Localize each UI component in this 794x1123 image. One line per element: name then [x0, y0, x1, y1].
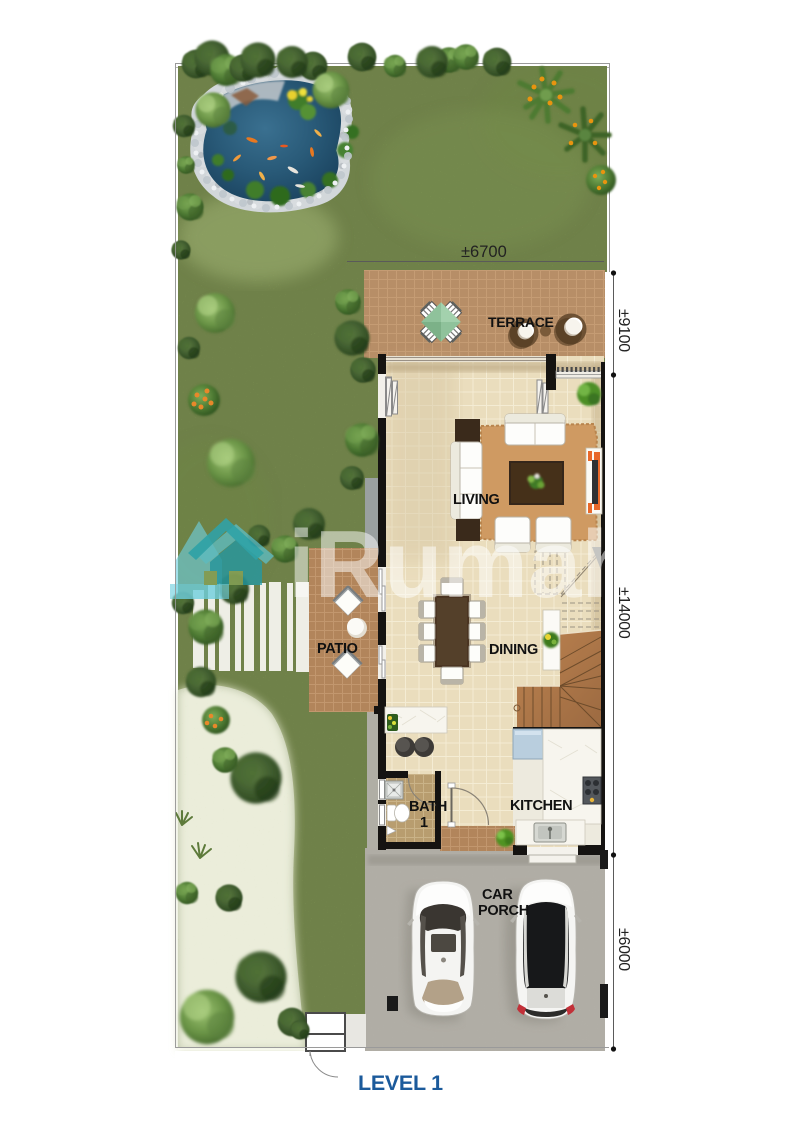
svg-text:KITCHEN: KITCHEN: [510, 798, 572, 814]
svg-text:1: 1: [420, 815, 428, 831]
svg-text:±9100: ±9100: [615, 309, 632, 352]
svg-text:iRumah: iRumah: [288, 511, 640, 618]
svg-text:TERRACE: TERRACE: [488, 314, 554, 330]
svg-text:LIVING: LIVING: [453, 492, 500, 508]
svg-text:PORCH: PORCH: [478, 903, 529, 919]
svg-text:±6000: ±6000: [615, 928, 632, 971]
svg-text:DINING: DINING: [489, 642, 538, 658]
svg-text:PATIO: PATIO: [317, 641, 358, 657]
svg-text:CAR: CAR: [482, 887, 513, 903]
svg-text:BATH: BATH: [409, 799, 447, 815]
svg-text:±6700: ±6700: [461, 243, 507, 261]
svg-text:±14000: ±14000: [615, 587, 632, 639]
svg-text:LEVEL 1: LEVEL 1: [358, 1071, 443, 1095]
